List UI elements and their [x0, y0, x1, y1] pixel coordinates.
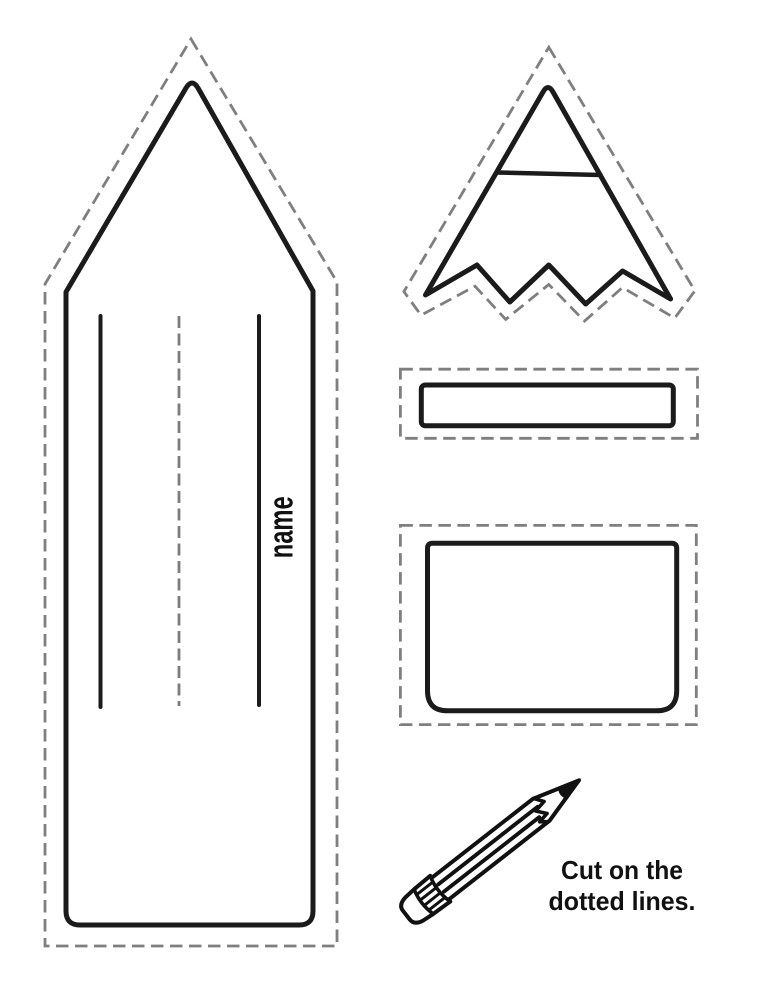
svg-text:name: name — [263, 496, 301, 558]
svg-text:Cut on the: Cut on the — [561, 855, 683, 885]
svg-text:dotted lines.: dotted lines. — [549, 886, 696, 916]
